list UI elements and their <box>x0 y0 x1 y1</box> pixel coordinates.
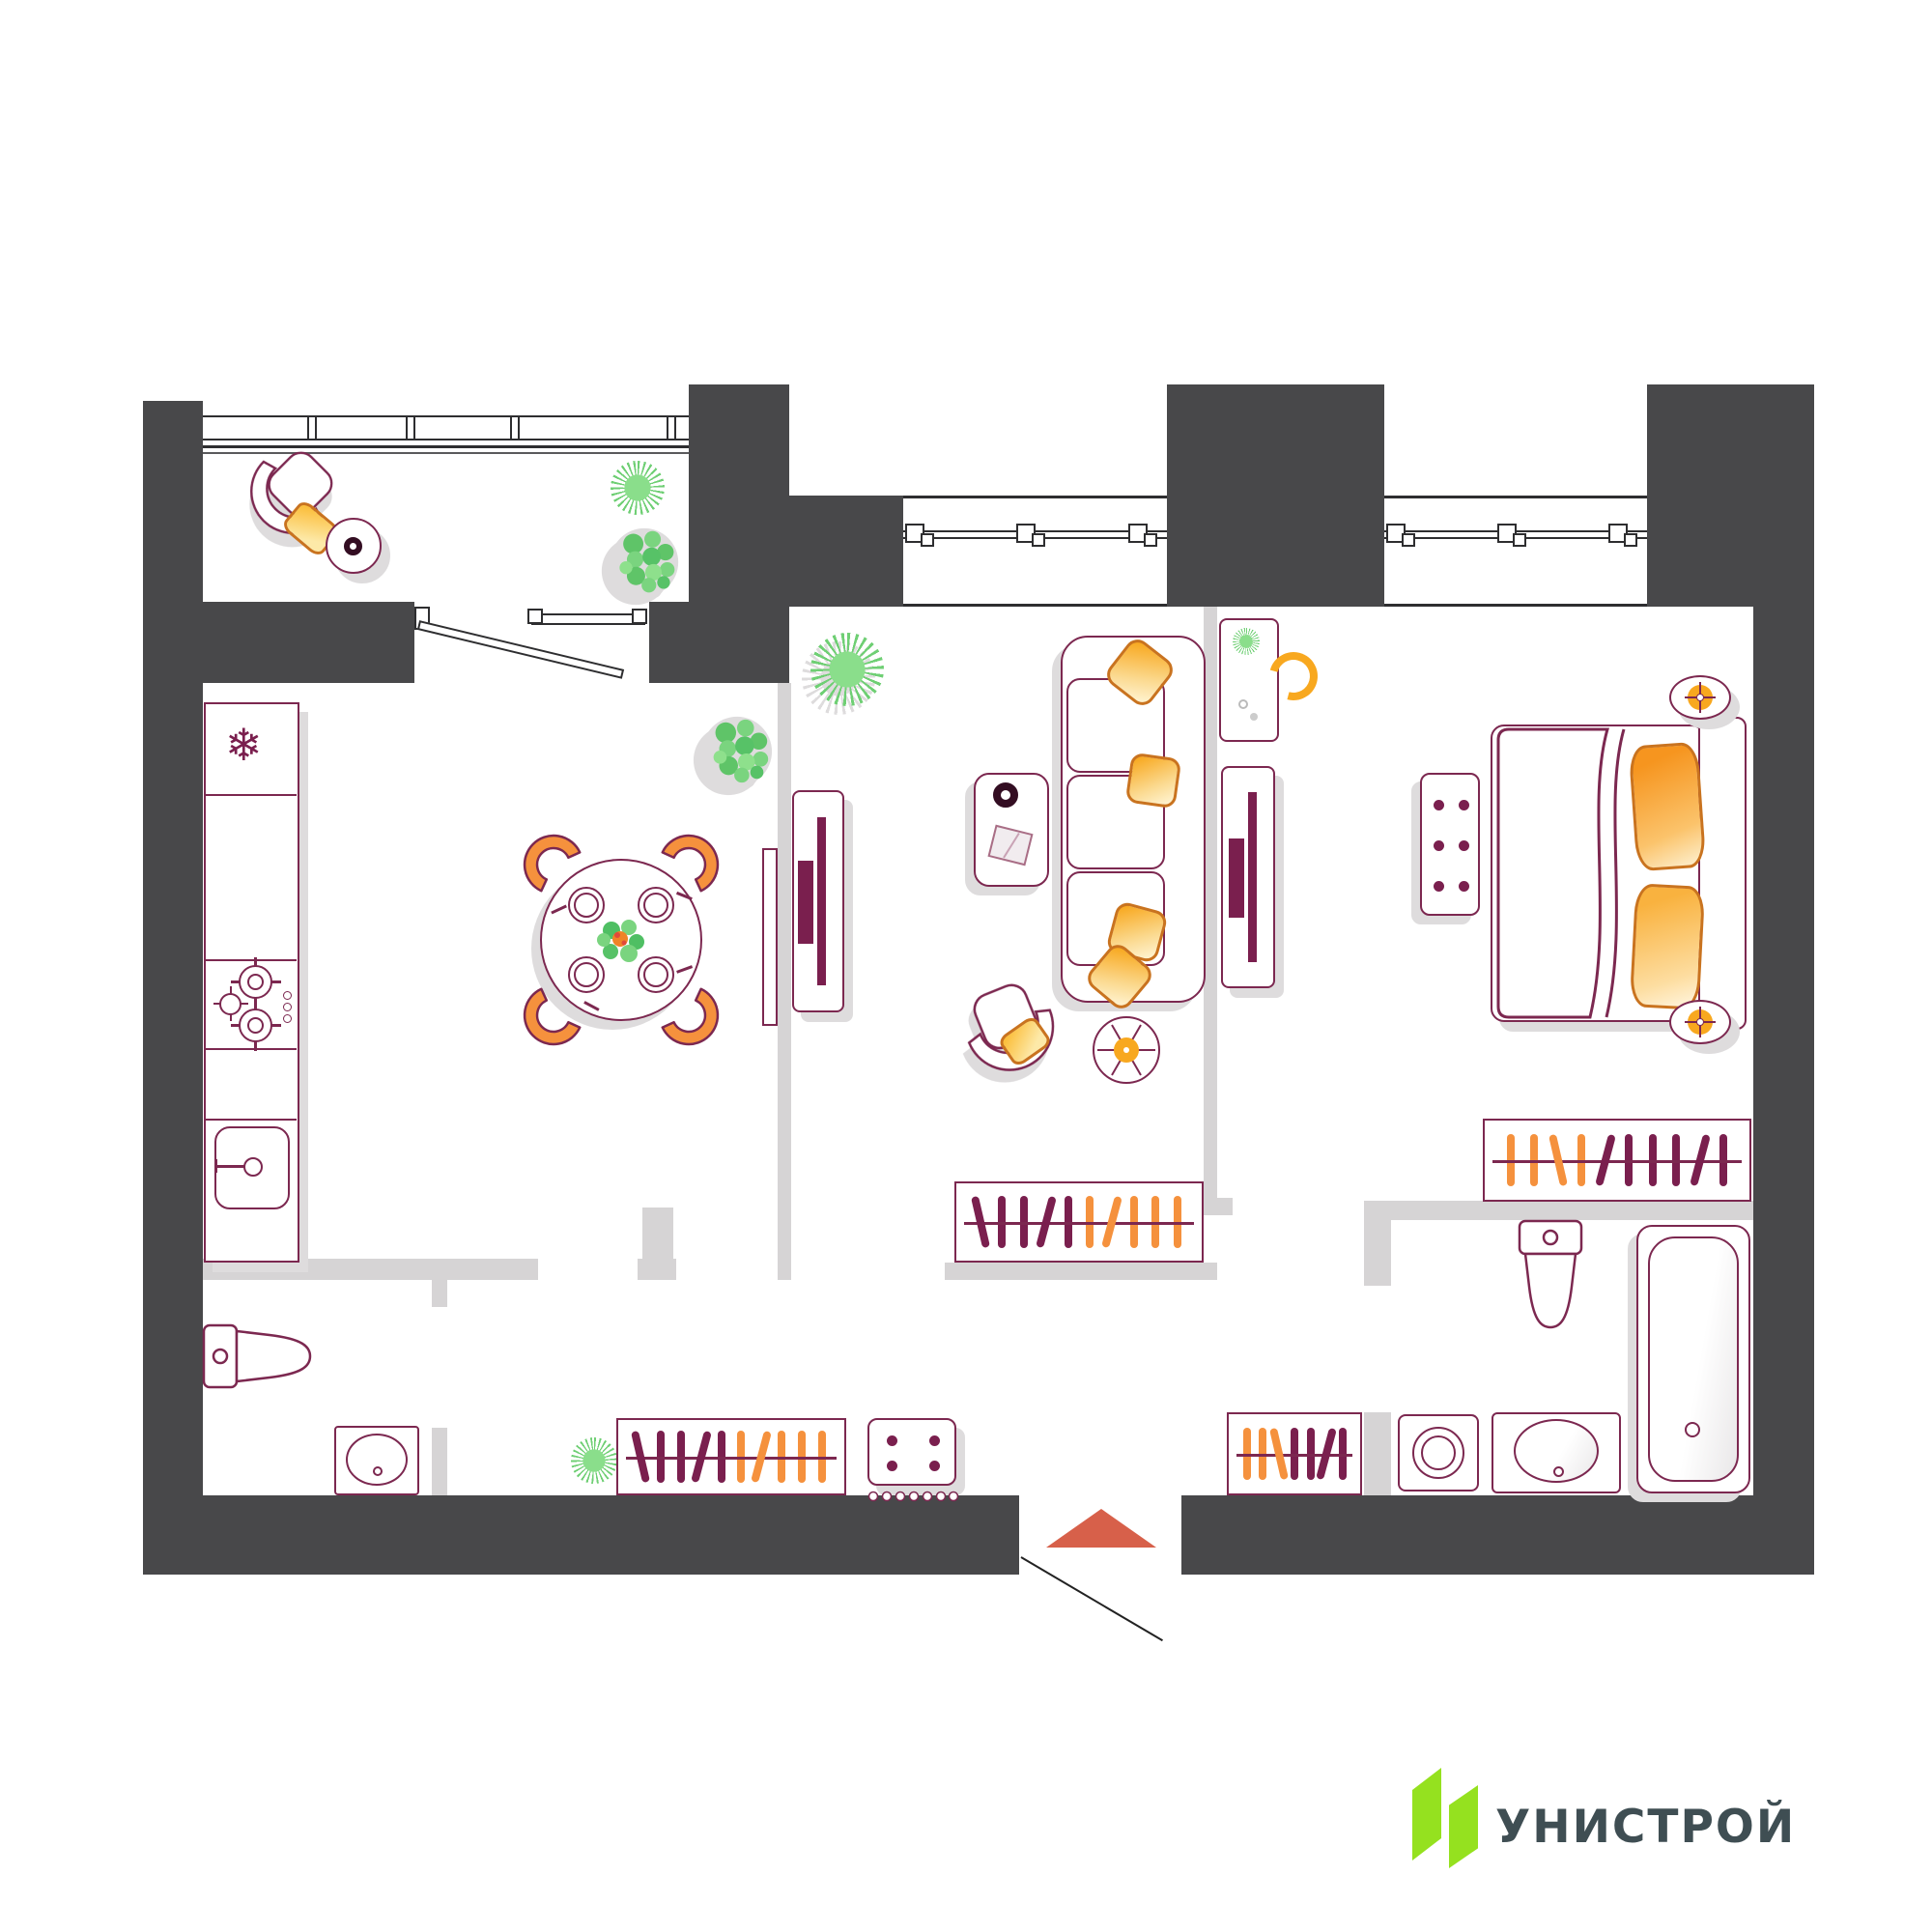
desk-plant <box>1233 628 1260 655</box>
wardrobe-rail <box>1492 1160 1742 1163</box>
wall-bottom-right <box>1181 1495 1814 1575</box>
living-spiky-plant <box>810 633 884 706</box>
stove-knob <box>283 1014 292 1023</box>
hall-wardrobe-1 <box>616 1418 846 1495</box>
wardrobe-rail <box>964 1222 1194 1225</box>
bedroom-wardrobe <box>1483 1119 1751 1202</box>
logo-mark-right <box>1449 1785 1478 1868</box>
toilet-main <box>1518 1219 1583 1331</box>
hall-wardrobe-2 <box>1227 1412 1362 1495</box>
balcony-band-window-stop <box>632 609 647 624</box>
washbasin-drain <box>1553 1466 1564 1477</box>
balcony-door-leaf <box>417 620 624 679</box>
partition-hall-jamb-foot <box>638 1259 676 1280</box>
window-handle <box>1032 533 1045 547</box>
partition-dining-living <box>778 683 791 1280</box>
cup-icon <box>344 537 362 555</box>
living-wardrobe <box>954 1181 1204 1263</box>
cabinet-knob <box>887 1435 897 1446</box>
sink-faucet-spout <box>216 1165 245 1168</box>
tv-screen <box>1248 792 1257 962</box>
wall-balcony-kitchen-band-left <box>203 602 414 683</box>
bed-pillow <box>1630 883 1706 1010</box>
desk-item-dot <box>1250 713 1258 721</box>
window-handle <box>1624 533 1637 547</box>
bench-button <box>1459 840 1469 851</box>
dining-wall-console <box>762 848 778 1026</box>
side-table-bowl-dot <box>1123 1047 1129 1053</box>
partition-living-bedroom <box>1204 607 1217 1200</box>
stove-knob <box>283 1003 292 1011</box>
stove-knob <box>283 991 292 1000</box>
wall-left <box>143 401 203 1575</box>
glazing-divider <box>667 417 676 439</box>
glazing-divider <box>510 417 520 439</box>
wall-right <box>1753 607 1814 1575</box>
tv-stand <box>1229 838 1244 918</box>
balcony-band-window-stop <box>527 609 543 624</box>
fridge-snowflake-icon: ❄ <box>225 719 263 771</box>
bench-button <box>1459 881 1469 892</box>
stove-burner-inner <box>247 974 264 990</box>
partition-bedroom-bath <box>1364 1201 1753 1220</box>
bed-pillow <box>1629 742 1707 872</box>
cup-icon <box>993 782 1018 808</box>
dining-bush-plant <box>699 714 775 789</box>
bathtub-inner <box>1648 1236 1739 1482</box>
cabinet-knob <box>929 1461 940 1471</box>
wall-pier-mid <box>1167 384 1384 607</box>
washing-machine-drum-inner <box>1421 1435 1456 1470</box>
brand-logo: УНИСТРОЙ <box>1406 1760 1840 1876</box>
lamp-center <box>1696 694 1704 701</box>
bed-headboard <box>1698 717 1747 1030</box>
sink-faucet-cap <box>214 1159 217 1173</box>
cabinet-knob <box>929 1435 940 1446</box>
window-handle <box>1144 533 1157 547</box>
shoe-tray <box>866 1488 960 1499</box>
bed-blanket <box>1495 726 1640 1020</box>
partition-bath-small-jamb-bottom <box>432 1428 447 1495</box>
counter-divider <box>206 794 297 796</box>
sofa-pillow <box>1125 753 1182 810</box>
wall-bottom-left <box>143 1495 1019 1575</box>
glazing-divider <box>406 417 415 439</box>
partition-living-bedroom-stub <box>1204 1198 1233 1215</box>
logo-mark-left <box>1412 1768 1441 1861</box>
wall-strip-top <box>789 496 905 607</box>
partition-bath-small-jamb-top <box>432 1280 447 1307</box>
balcony-band-window <box>531 613 645 625</box>
lamp-center <box>1696 1018 1704 1026</box>
desk-item-dot <box>1238 699 1248 709</box>
window-handle <box>921 533 934 547</box>
dining-centerpiece-plant <box>594 913 648 967</box>
wall-pier-right <box>1647 384 1814 607</box>
balcony-glazing <box>203 415 689 440</box>
stove-burner-inner <box>247 1017 264 1034</box>
partition-bath-main-wall-top <box>1364 1201 1391 1286</box>
toilet <box>201 1323 315 1389</box>
partition-living-hall <box>945 1263 1217 1280</box>
glazing-divider <box>307 417 317 439</box>
wardrobe-rail <box>1236 1454 1352 1457</box>
entrance-door-swing <box>1020 1556 1162 1641</box>
washbasin-drain <box>373 1466 383 1476</box>
washbasin-bowl <box>346 1434 408 1486</box>
bench-button <box>1434 881 1444 892</box>
sink-faucet <box>243 1157 263 1177</box>
wall-pier-left-foot <box>649 602 789 683</box>
partition-bath-main-wall-bottom <box>1364 1412 1391 1495</box>
logo-text: УНИСТРОЙ <box>1495 1801 1796 1854</box>
window-bedroom <box>1384 496 1647 607</box>
bench-button <box>1459 800 1469 810</box>
floor-plan: ❄ <box>0 0 1932 1932</box>
window-handle <box>1402 533 1415 547</box>
balcony-bush-plant <box>608 526 681 599</box>
balcony-spiky-plant <box>611 461 665 515</box>
window-handle <box>1513 533 1526 547</box>
bench-button <box>1434 840 1444 851</box>
tv-screen <box>817 817 826 985</box>
bathtub-drain <box>1685 1422 1700 1437</box>
bench-button <box>1434 800 1444 810</box>
stove-burner-small <box>219 993 241 1015</box>
shoe-cabinet <box>867 1418 956 1486</box>
counter-divider <box>206 959 297 961</box>
cabinet-knob <box>887 1461 897 1471</box>
counter-divider <box>206 1048 297 1050</box>
bedroom-bench <box>1420 773 1480 916</box>
wall-pier-left <box>689 384 789 602</box>
counter-divider <box>206 1119 297 1121</box>
hall-plant <box>571 1437 617 1484</box>
tv-stand <box>798 861 813 944</box>
entrance-arrow <box>1046 1509 1156 1548</box>
wardrobe-rail <box>626 1457 837 1460</box>
window-living <box>903 496 1167 607</box>
